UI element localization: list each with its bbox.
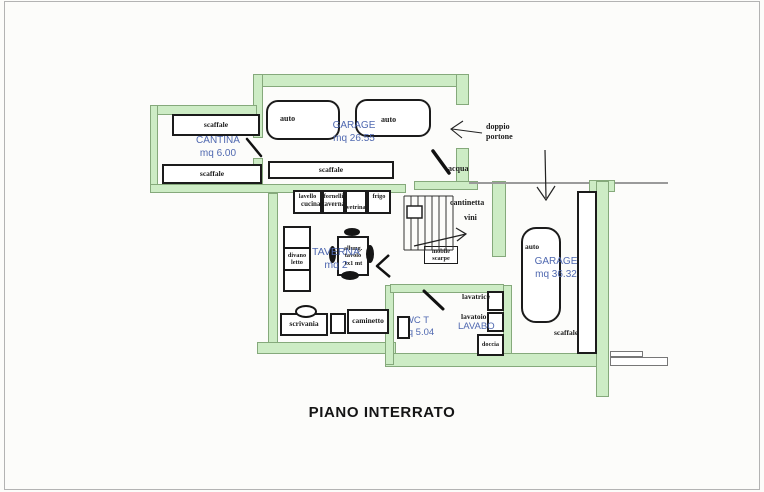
washing-machine-label: lavatrice [462,292,490,301]
wine-cellar-label: cantinetta [450,198,484,208]
car-label: auto [381,115,396,125]
wall [253,74,469,87]
fireplace: caminetto [347,309,389,334]
room-label-lavabo: LAVABO [458,321,495,333]
wall [268,193,278,354]
desk-label: scrivania [288,319,319,330]
sofa-bed-label: divano letto [285,251,309,267]
chair [366,245,374,263]
shelf [577,191,597,354]
shower-label: doccia [481,340,500,349]
external-step [610,357,668,366]
shelf-label: scaffale [318,165,344,176]
boundary-line [610,182,668,184]
sofa-bed-line [284,247,310,249]
car-label: auto [525,242,539,251]
wall [596,181,609,397]
wall [492,181,506,257]
fireplace-label: caminetto [351,316,385,327]
floor-plan: scaffale scaffale auto auto scaffale lav… [0,0,764,492]
room-label-garage-right: GARAGE mq 36.32 [532,256,580,281]
car-label: auto [280,114,295,124]
shelf: scaffale [172,114,260,136]
kitchen-cabinet: vetrina [345,190,367,214]
shoe-cabinet-label: mobile scarpe [425,247,457,263]
shelf-label: scaffale [203,120,229,131]
wall [150,105,158,193]
wall [257,342,396,354]
room-label-garage-top: GARAGE mq 26.55 [331,120,377,145]
room-label-cantina: CANTINA mq 6.00 [194,135,242,160]
shelf-label: scaffale [554,328,578,337]
wall [456,74,469,105]
shelf-label: scaffale [199,169,225,180]
double-door-label: doppio portone [486,122,513,142]
shelf: scaffale [268,161,394,179]
sofa-bed: divano letto [283,226,311,292]
kitchen-label: cucina taverna [301,200,345,209]
plan-title: PIANO INTERRATO [0,404,764,421]
sofa-bed-line [284,269,310,271]
shoe-cabinet: mobile scarpe [424,246,458,264]
shower: doccia [477,334,504,356]
boundary-line [469,182,591,184]
washtub-label: lavatoio [461,312,486,321]
shelf: scaffale [162,164,262,184]
water-label: acqua [448,164,468,174]
chair [341,271,359,280]
kitchen-fridge: frigo [367,190,391,214]
wc-sink [397,316,410,339]
car-outline [266,100,340,140]
desk-chair [295,305,317,318]
chair [344,228,360,236]
fridge-label: frigo [372,192,387,201]
room-label-taverna: TAVERNA mq 2 [308,246,364,272]
cabinet-label: vetrina [345,203,366,212]
cabinet [330,313,346,334]
wine-label: vini [464,213,477,223]
